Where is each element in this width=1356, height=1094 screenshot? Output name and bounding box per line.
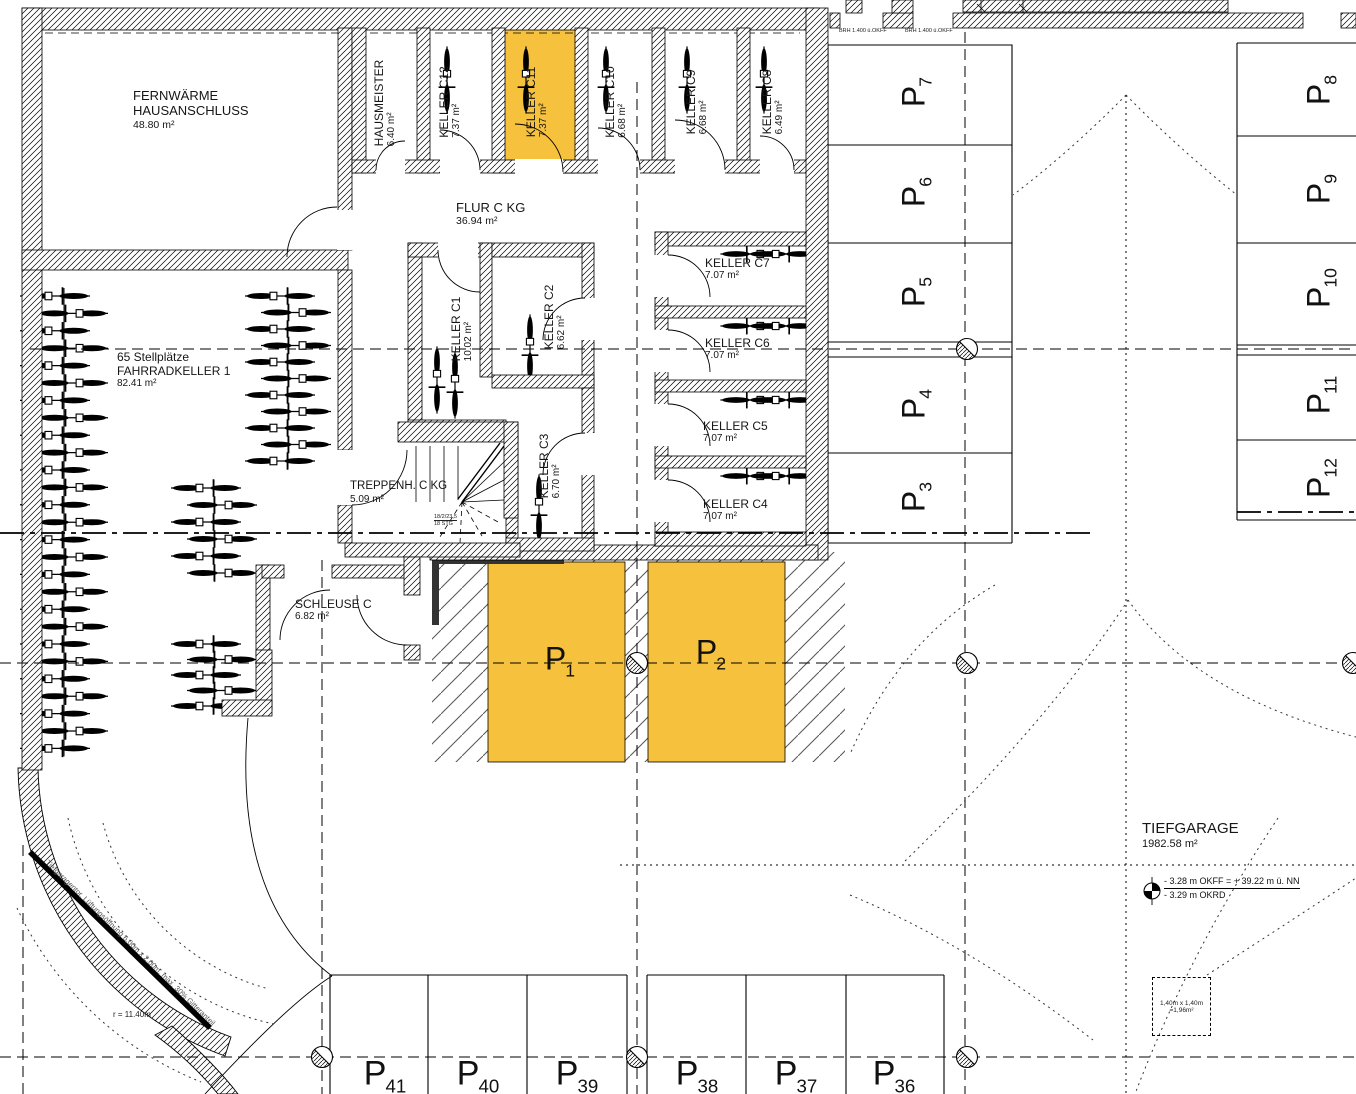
room-label-tiefgarage: TIEFGARAGE 1982.58 m² [1142, 820, 1239, 851]
parking-space-p9-label: P9 [1300, 174, 1341, 204]
floor-plan-basement: FERNWÄRME HAUSANSCHLUSS 48.80 m² HAUSMEI… [0, 0, 1356, 1094]
room-label-flur: FLUR C KG 36.94 m² [456, 200, 525, 228]
room-label-schleuse: SCHLEUSE C 6.82 m² [295, 597, 372, 623]
parking-space-p41-label: P41 [364, 1055, 406, 1094]
room-label-keller-c1: KELLER C1 10.02 m² [449, 297, 475, 362]
room-label-keller-c2: KELLER C2 6.62 m² [542, 285, 568, 350]
brh-annotation-1: BRH 1.400 ü.OKFF [839, 28, 887, 34]
parking-space-p40-label: P40 [457, 1055, 499, 1094]
parking-space-p1-label[interactable]: P1 [545, 640, 575, 681]
room-label-keller-c5: KELLER C5 7.07 m² [703, 419, 768, 445]
floorplan-drawing [0, 0, 1356, 1094]
room-label-hausmeister: HAUSMEISTER 6.40 m² [372, 60, 398, 147]
parking-space-p39-label: P39 [556, 1055, 598, 1094]
brh-annotation-2: BRH 1.400 ü.OKFF [905, 28, 953, 34]
parking-space-p6-label: P6 [895, 177, 936, 207]
room-label-keller-c7: KELLER C7 7.07 m² [705, 256, 770, 282]
room-label-fahrradkeller: 65 Stellplätze FAHRRADKELLER 1 82.41 m² [117, 350, 230, 390]
parking-space-p37-label: P37 [775, 1055, 817, 1094]
room-label-keller-c8: KELLER C8 6.49 m² [760, 70, 786, 135]
parking-space-p12-label: P12 [1300, 458, 1341, 498]
level-marker-symbol [1144, 877, 1160, 905]
room-label-fernwaerme: FERNWÄRME HAUSANSCHLUSS 48.80 m² [133, 88, 249, 131]
parking-space-p10-label: P10 [1300, 268, 1341, 308]
garage-gate-line [30, 852, 210, 1028]
parking-space-p7-label: P7 [895, 77, 936, 107]
parking-space-p11-label: P11 [1300, 376, 1341, 415]
parking-space-p38-label: P38 [676, 1055, 718, 1094]
ramp [18, 718, 332, 1094]
room-label-keller-c10: KELLER C10 6.68 m² [603, 66, 629, 137]
level-annotation: - 3.28 m OKFF = + 39.22 m ü. NN - 3.29 m… [1164, 876, 1300, 900]
room-label-keller-c12: KELLER C12 7.37 m² [437, 66, 463, 137]
parking-space-p2-label[interactable]: P2 [696, 633, 726, 674]
room-label-keller-c3: KELLER C3 6.70 m² [537, 434, 563, 499]
stair-note: 18/2/23,5 18 STG [434, 514, 457, 527]
radius-annotation: r = 11.40m [113, 1010, 151, 1019]
room-label-treppenhaus: TREPPENH. C KG 5.09 m² [350, 480, 447, 505]
parking-space-p4-label: P4 [895, 389, 936, 419]
parking-space-p36-label: P36 [873, 1055, 915, 1094]
room-label-keller-c6: KELLER C6 7.07 m² [705, 336, 770, 362]
parking-space-p8-label: P8 [1300, 75, 1341, 105]
room-label-keller-c4: KELLER C4 7.07 m² [703, 497, 768, 523]
room-label-keller-c11[interactable]: KELLER C11 7.37 m² [524, 67, 550, 137]
reserve-area-box: 1,40m x 1,40m =1,96m² [1152, 977, 1211, 1036]
parking-space-p5-label: P5 [895, 277, 936, 307]
parking-space-p3-label: P3 [895, 482, 936, 512]
room-label-keller-c9: KELLER C9 6.68 m² [684, 70, 710, 135]
